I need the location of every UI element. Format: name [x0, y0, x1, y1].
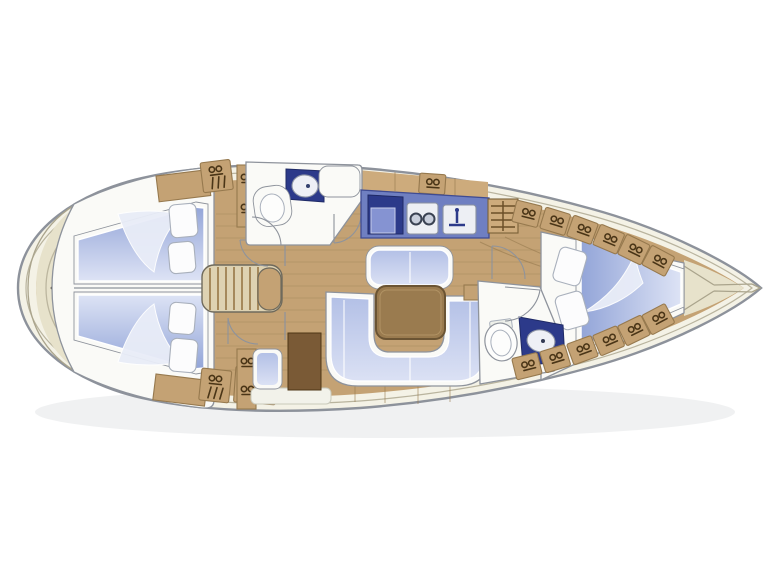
- pillow: [168, 241, 197, 274]
- stove-oven: [368, 195, 403, 234]
- pillow: [168, 302, 197, 335]
- chart-cabinet: [288, 333, 321, 390]
- deck-hatch: [199, 368, 232, 403]
- deck-hatch: [200, 159, 233, 192]
- galley: [361, 190, 489, 238]
- washbasin: [286, 169, 324, 202]
- yacht-floor-plan: [0, 0, 768, 576]
- twin-burners: [407, 203, 438, 234]
- wardrobe: [319, 166, 360, 197]
- pillow: [169, 338, 199, 373]
- yacht-floor-plan-canvas: [0, 0, 768, 576]
- galley-sink: [443, 205, 476, 234]
- navigator-seat: [253, 349, 282, 389]
- straight-settee: [366, 246, 453, 289]
- dining-table: [376, 286, 445, 339]
- pillow: [169, 203, 199, 238]
- deck-hatch: [419, 173, 446, 195]
- toilet: [251, 184, 293, 229]
